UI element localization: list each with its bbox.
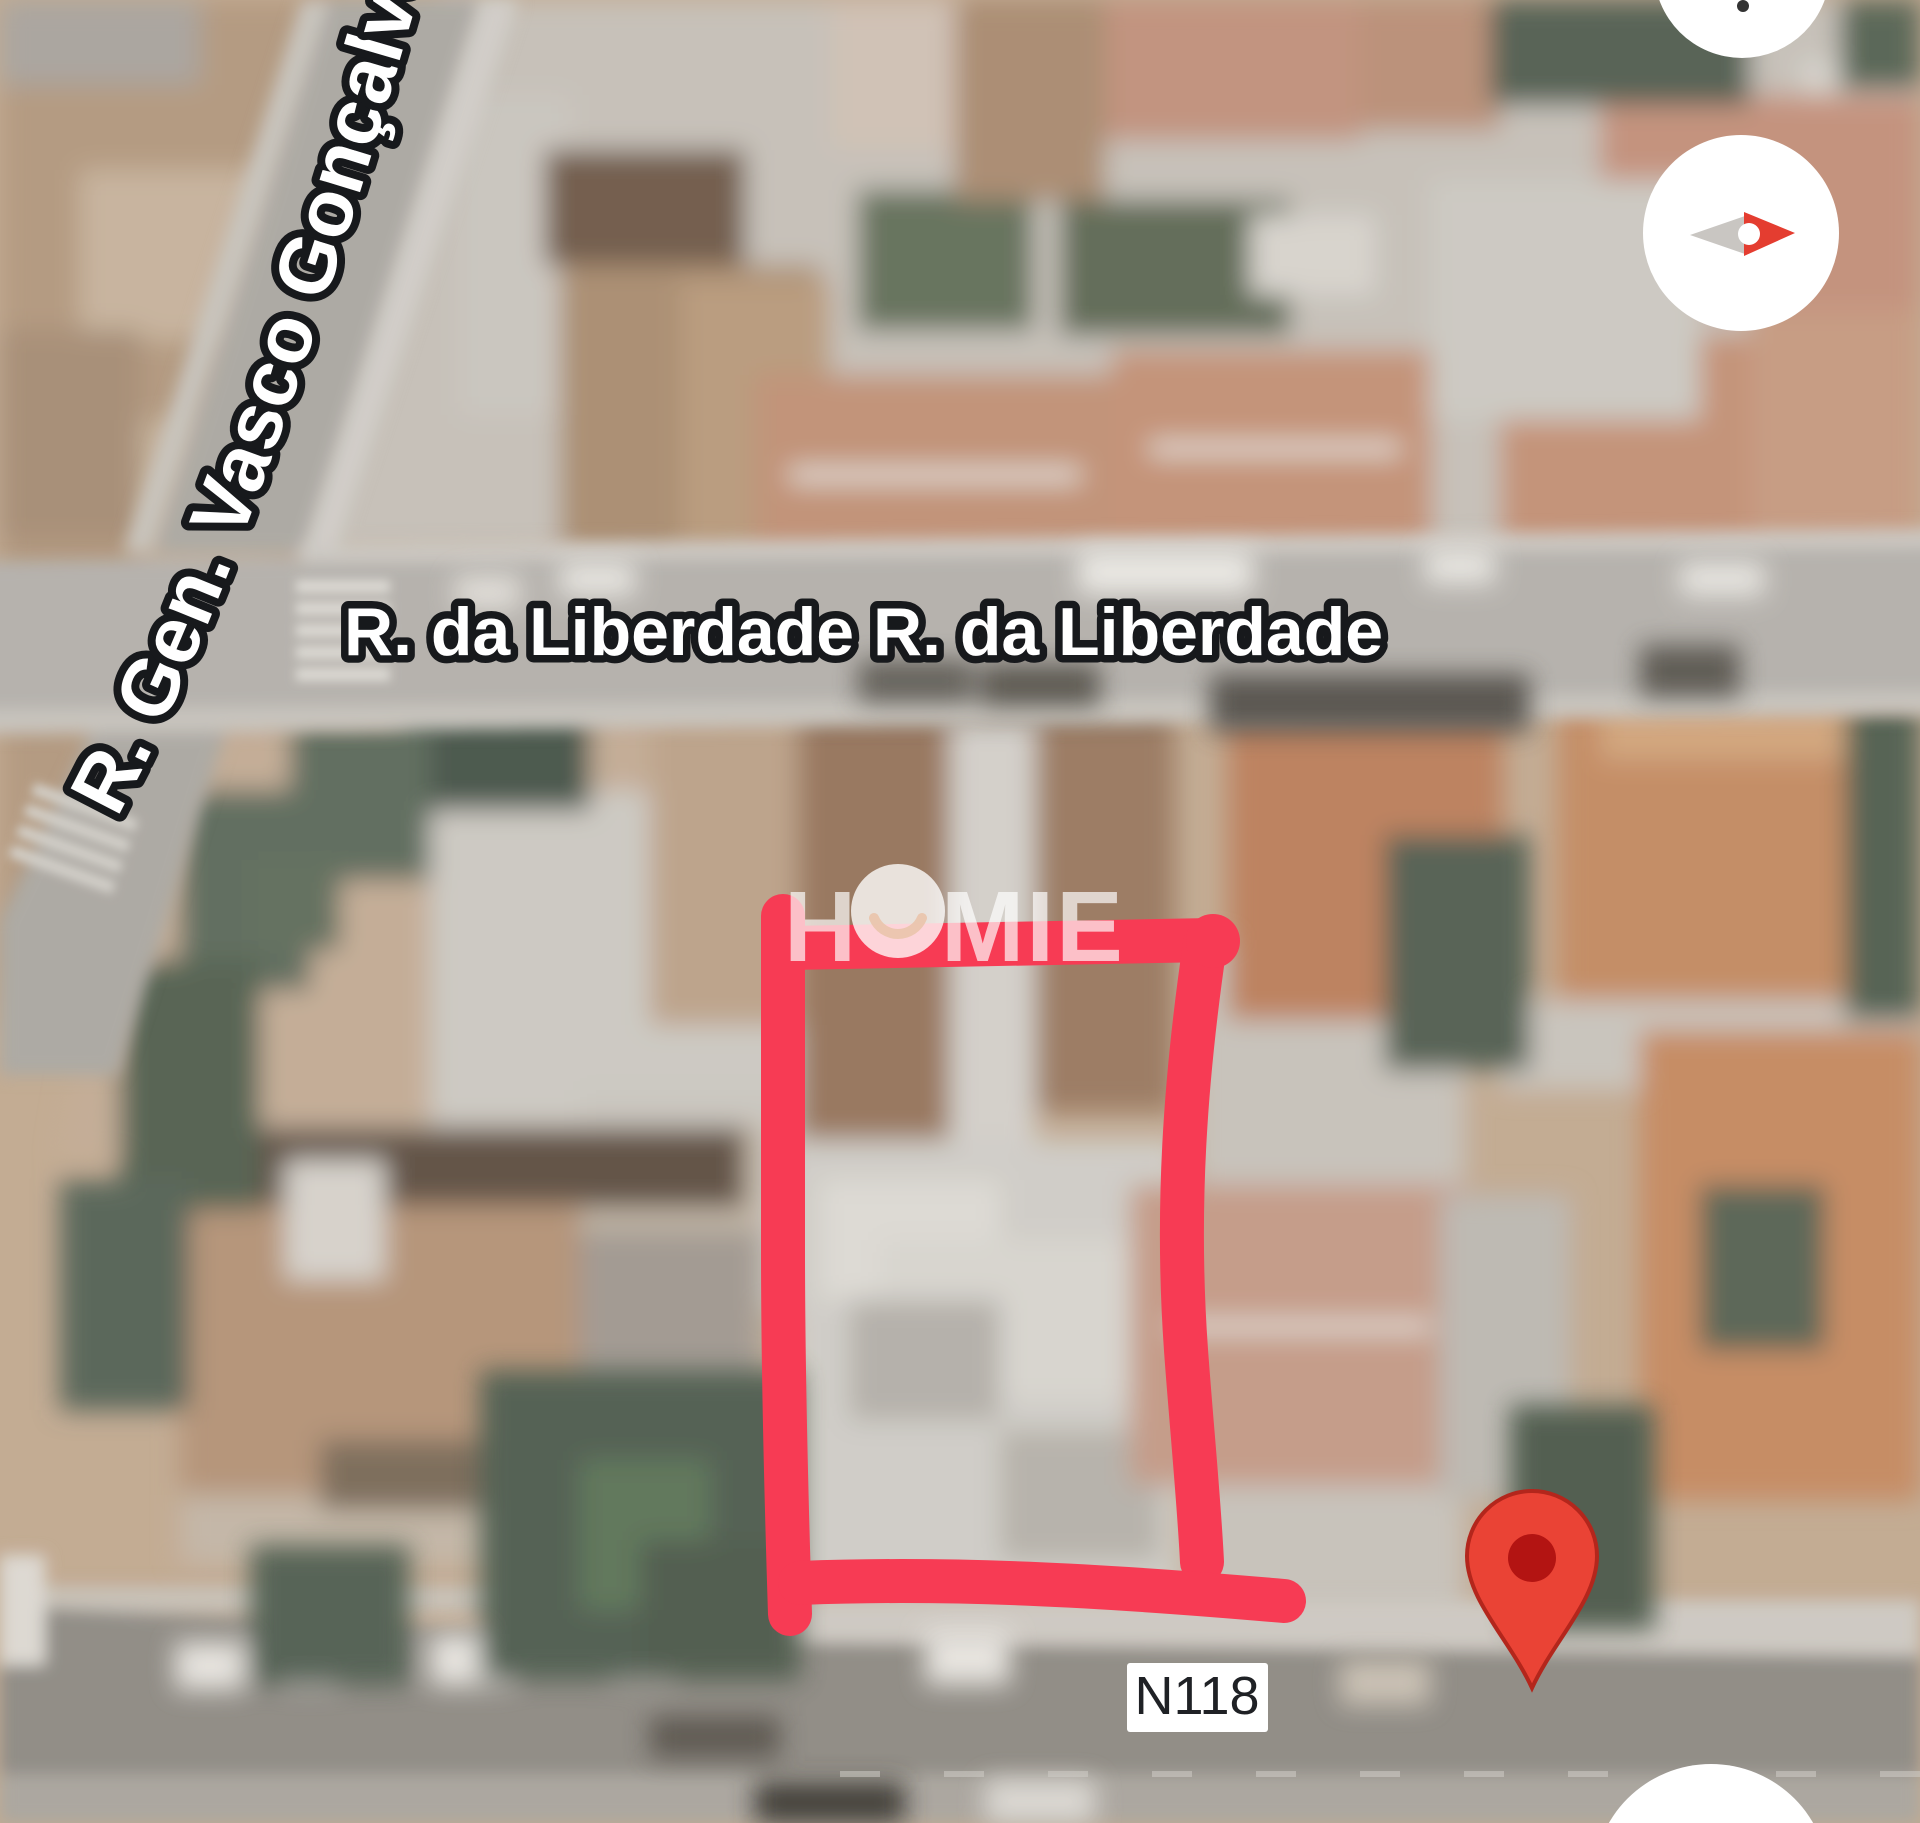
- svg-text:MIE: MIE: [941, 871, 1125, 983]
- svg-text:N118: N118: [1134, 1666, 1259, 1726]
- svg-text:R. da Liberdade R. da Liberdad: R. da Liberdade R. da Liberdade: [344, 594, 1383, 670]
- svg-text:H: H: [784, 871, 858, 983]
